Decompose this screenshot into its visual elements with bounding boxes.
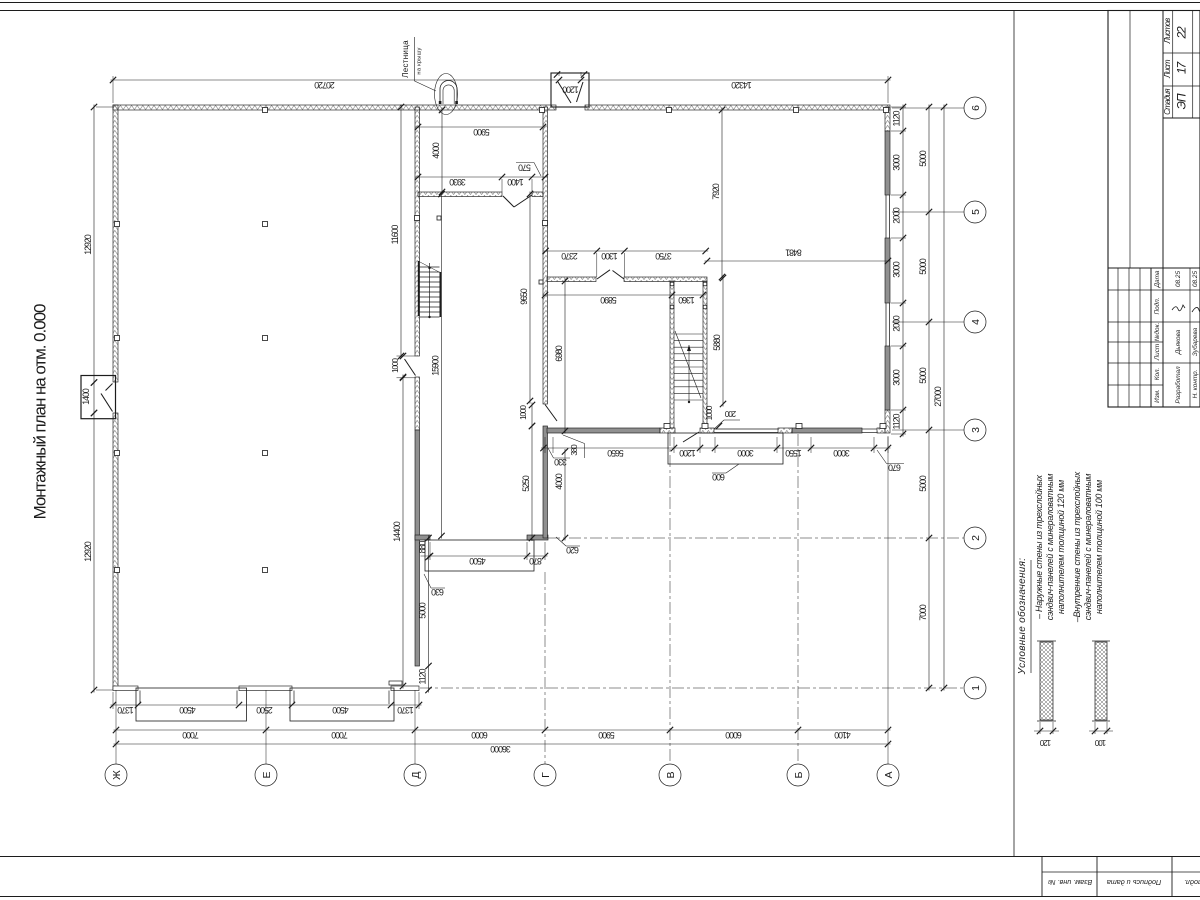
svg-text:12920: 12920 (83, 234, 93, 255)
svg-text:9650: 9650 (519, 288, 529, 305)
svg-text:Кол.: Кол. (1154, 368, 1161, 381)
svg-text:3000: 3000 (892, 154, 902, 171)
svg-text:А: А (883, 771, 895, 778)
svg-text:Ж: Ж (111, 770, 123, 780)
svg-text:5250: 5250 (521, 475, 531, 492)
svg-text:сэндвич-панелей с минераловатн: сэндвич-панелей с минераловатным (1045, 474, 1055, 621)
svg-text:Условные обозначения:: Условные обозначения: (1016, 558, 1028, 676)
svg-text:3: 3 (970, 427, 982, 433)
svg-text:Зубарева: Зубарева (1191, 327, 1199, 356)
svg-text:подл.: подл. (1184, 878, 1200, 887)
svg-text:1120: 1120 (892, 110, 902, 126)
svg-text:11600: 11600 (390, 224, 400, 244)
svg-text:4000: 4000 (554, 473, 564, 490)
svg-text:6000: 6000 (725, 730, 742, 740)
svg-text:600: 600 (712, 472, 725, 482)
svg-text:1400: 1400 (507, 177, 524, 187)
svg-text:4000: 4000 (431, 142, 441, 159)
svg-text:08.25: 08.25 (1192, 271, 1199, 287)
svg-text:сэндвич-панелей с минераловатн: сэндвич-панелей с минераловатным (1083, 474, 1093, 621)
svg-text:3000: 3000 (833, 448, 850, 458)
svg-text:Б: Б (793, 771, 805, 778)
svg-text:7000: 7000 (331, 730, 348, 740)
svg-text:36000: 36000 (490, 744, 511, 754)
svg-text:4500: 4500 (469, 556, 486, 566)
svg-text:6000: 6000 (471, 730, 488, 740)
svg-text:1400: 1400 (81, 388, 91, 405)
svg-text:5900: 5900 (473, 127, 490, 137)
svg-text:14320: 14320 (731, 80, 752, 90)
svg-text:Е: Е (261, 771, 273, 778)
svg-text:Взам. инв. №: Взам. инв. № (1048, 878, 1093, 887)
svg-text:100: 100 (1094, 738, 1106, 747)
svg-text:1370: 1370 (117, 705, 134, 715)
svg-text:3000: 3000 (737, 448, 754, 458)
svg-text:Изм.: Изм. (1154, 389, 1161, 403)
svg-text:08.25: 08.25 (1175, 271, 1182, 287)
svg-text:наполнителем толщиной 120 мм: наполнителем толщиной 120 мм (1056, 480, 1066, 614)
svg-text:2500: 2500 (256, 705, 273, 715)
svg-text:1200: 1200 (679, 448, 696, 458)
svg-text:5000: 5000 (918, 258, 928, 275)
svg-text:Стадия: Стадия (1163, 88, 1172, 115)
svg-text:Г: Г (540, 772, 552, 778)
svg-text:200: 200 (724, 409, 736, 418)
svg-text:8481: 8481 (785, 248, 802, 258)
svg-text:Н. контр.: Н. контр. (1192, 370, 1199, 399)
svg-text:Лист: Лист (1154, 343, 1161, 361)
svg-text:3750: 3750 (655, 251, 672, 261)
svg-text:12920: 12920 (83, 541, 93, 562)
svg-text:7000: 7000 (182, 730, 199, 740)
svg-text:4100: 4100 (834, 730, 851, 740)
svg-text:5000: 5000 (418, 602, 428, 619)
svg-text:27000: 27000 (933, 386, 943, 407)
svg-text:2: 2 (970, 535, 982, 541)
svg-text:5000: 5000 (918, 475, 928, 492)
svg-text:22: 22 (1174, 26, 1188, 39)
svg-text:7000: 7000 (918, 604, 928, 621)
svg-text:Д: Д (410, 771, 422, 778)
svg-text:Дата: Дата (1154, 270, 1161, 288)
svg-text:1: 1 (970, 685, 982, 691)
svg-text:20720: 20720 (314, 80, 335, 90)
svg-text:1300: 1300 (601, 251, 618, 261)
svg-text:5000: 5000 (918, 150, 928, 167)
svg-text:14400: 14400 (392, 521, 402, 542)
svg-text:4: 4 (970, 319, 982, 325)
svg-text:6980: 6980 (554, 345, 564, 362)
svg-text:Листов: Листов (1163, 18, 1172, 44)
svg-text:620: 620 (566, 545, 579, 555)
svg-text:наполнителем толщиной 100 мм: наполнителем толщиной 100 мм (1094, 480, 1104, 614)
svg-text:1360: 1360 (678, 295, 695, 305)
svg-text:1550: 1550 (785, 448, 802, 458)
svg-text:2000: 2000 (892, 315, 902, 332)
svg-text:5650: 5650 (607, 448, 624, 458)
svg-text:5: 5 (970, 209, 982, 215)
svg-text:В: В (665, 771, 677, 778)
svg-text:1120: 1120 (892, 413, 902, 429)
svg-text:330: 330 (554, 457, 567, 467)
svg-text:3000: 3000 (892, 261, 902, 278)
svg-text:Подпись и дата: Подпись и дата (1107, 878, 1161, 887)
svg-text:1370: 1370 (397, 705, 414, 715)
svg-text:2370: 2370 (561, 251, 578, 261)
svg-text:Лестница: Лестница (401, 40, 410, 78)
svg-text:1200: 1200 (562, 85, 579, 95)
svg-text:880: 880 (418, 541, 428, 554)
svg-text:4500: 4500 (332, 705, 349, 715)
svg-text:5900: 5900 (598, 730, 615, 740)
svg-text:3000: 3000 (892, 369, 902, 386)
svg-text:1000: 1000 (705, 405, 714, 420)
svg-text:Монтажный план на отм. 0.000: Монтажный план на отм. 0.000 (31, 304, 50, 519)
svg-text:15900: 15900 (431, 355, 441, 376)
svg-text:570: 570 (518, 163, 531, 173)
svg-text:3930: 3930 (449, 177, 466, 187)
svg-text:5890: 5890 (600, 295, 617, 305)
svg-text:ЭП: ЭП (1174, 93, 1188, 109)
svg-text:7920: 7920 (711, 183, 721, 200)
svg-text:2000: 2000 (892, 207, 902, 224)
svg-text:Лист: Лист (1163, 59, 1172, 79)
svg-text:5880: 5880 (712, 334, 722, 351)
svg-text:№док.: №док. (1153, 323, 1161, 342)
svg-text:670: 670 (888, 463, 901, 473)
svg-text:1120: 1120 (418, 668, 428, 684)
svg-text:4500: 4500 (179, 705, 196, 715)
svg-text:на крышу: на крышу (417, 47, 423, 74)
svg-text:6: 6 (970, 105, 982, 111)
svg-text:5000: 5000 (918, 367, 928, 384)
svg-text:120: 120 (1039, 738, 1051, 747)
svg-text:630: 630 (431, 587, 444, 597)
svg-text:1000: 1000 (519, 405, 528, 420)
svg-text:870: 870 (529, 556, 542, 566)
svg-text:380: 380 (570, 444, 579, 456)
svg-text:Разработал: Разработал (1174, 366, 1182, 404)
svg-text:– Наружные стены из трехслойны: – Наружные стены из трехслойных (1034, 474, 1044, 620)
svg-text:–Внутренние стены из трехслойн: –Внутренние стены из трехслойных (1072, 471, 1082, 623)
svg-text:Подп.: Подп. (1153, 297, 1161, 314)
svg-text:1000: 1000 (391, 358, 400, 373)
svg-text:Дьякова: Дьякова (1175, 329, 1182, 355)
